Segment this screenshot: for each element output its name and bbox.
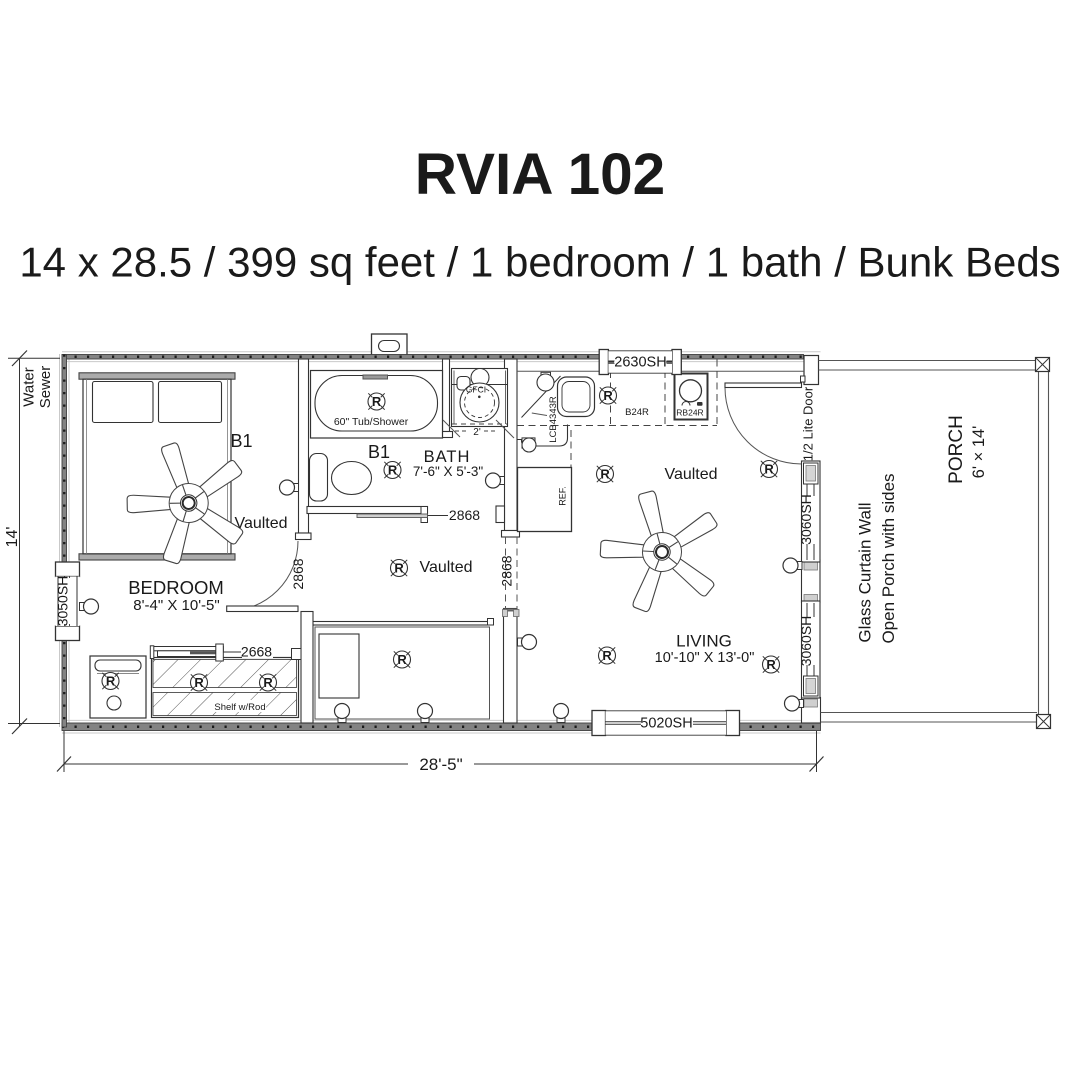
svg-text:28'-5": 28'-5" [419,755,462,774]
svg-text:GFCI: GFCI [466,385,486,395]
svg-text:LIVING: LIVING [676,632,732,651]
svg-text:2868: 2868 [499,555,515,586]
svg-text:3050SH: 3050SH [55,576,71,627]
svg-text:3060SH: 3060SH [798,616,814,667]
svg-text:6' × 14': 6' × 14' [970,426,988,479]
svg-text:Vaulted: Vaulted [234,515,287,532]
svg-text:B1: B1 [230,431,252,451]
svg-text:Open Porch with sides: Open Porch with sides [879,473,898,643]
svg-text:5020SH: 5020SH [640,716,692,732]
svg-text:LCB4343R: LCB4343R [548,396,559,443]
svg-text:RB24R: RB24R [676,408,703,418]
svg-text:2868: 2868 [290,558,306,589]
svg-text:2': 2' [473,427,481,438]
svg-text:B24R: B24R [625,407,649,418]
svg-text:PORCH: PORCH [946,415,967,484]
svg-text:2668: 2668 [241,644,272,660]
svg-text:Vaulted: Vaulted [664,466,717,483]
svg-text:Sewer: Sewer [37,366,54,409]
svg-text:14': 14' [4,527,21,548]
svg-text:Glass Curtain Wall: Glass Curtain Wall [856,502,875,642]
svg-text:2868: 2868 [449,507,480,523]
svg-text:Water: Water [21,367,38,406]
svg-text:REF.: REF. [558,486,568,506]
svg-text:Vaulted: Vaulted [419,559,472,576]
svg-text:2630SH: 2630SH [614,355,666,371]
svg-text:Shelf w/Rod: Shelf w/Rod [214,702,265,713]
svg-text:60" Tub/Shower: 60" Tub/Shower [334,416,409,428]
svg-text:RVIA 102: RVIA 102 [415,142,665,207]
svg-text:10'-10" X 13'-0": 10'-10" X 13'-0" [655,650,755,666]
svg-text:B1: B1 [368,442,390,462]
svg-text:7'-6" X 5'-3": 7'-6" X 5'-3" [413,464,483,479]
svg-text:3060SH: 3060SH [798,494,814,545]
svg-text:8'-4" X 10'-5": 8'-4" X 10'-5" [133,597,219,614]
svg-text:1/2 Lite Door: 1/2 Lite Door [801,386,816,461]
svg-text:14 x 28.5 / 399 sq feet / 1 be: 14 x 28.5 / 399 sq feet / 1 bedroom / 1 … [19,239,1060,286]
svg-text:BEDROOM: BEDROOM [128,577,224,598]
